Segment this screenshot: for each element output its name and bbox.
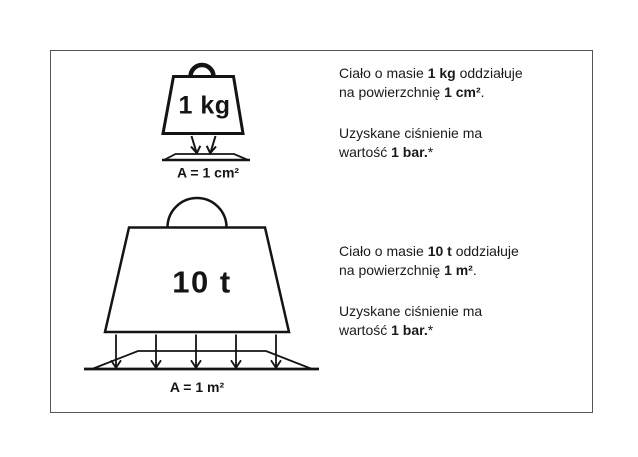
caption-text: oddziałuje: [452, 243, 519, 259]
caption-block-small-weight: Ciało o masie 1 kg oddziałuje na powierz…: [339, 64, 579, 162]
small-force-arrows: [191, 136, 216, 153]
large-weight-group: 10 t A = 1 m²: [84, 198, 319, 395]
caption-line: Ciało o masie 10 t oddziałuje: [339, 242, 579, 261]
large-weight-mass-label: 10 t: [172, 265, 231, 300]
caption-text: Uzyskane ciśnienie ma: [339, 125, 482, 141]
caption-text: .: [473, 262, 477, 278]
caption-text: na powierzchnię: [339, 262, 444, 278]
caption-line: Uzyskane ciśnienie ma: [339, 302, 579, 321]
caption-text: Ciało o masie: [339, 65, 428, 81]
large-weight-handle: [168, 198, 227, 228]
caption-paragraph: Uzyskane ciśnienie ma wartość 1 bar.*: [339, 302, 579, 340]
figure-frame: 1 kg A = 1 cm² 10 t: [50, 50, 593, 413]
caption-block-large-weight: Ciało o masie 10 t oddziałuje na powierz…: [339, 242, 579, 340]
caption-text: wartość: [339, 144, 391, 160]
small-weight-group: 1 kg A = 1 cm²: [162, 65, 250, 181]
caption-line: wartość 1 bar.*: [339, 143, 579, 162]
large-area-label: A = 1 m²: [170, 379, 225, 395]
footnote-asterisk: *: [428, 322, 433, 338]
caption-text: Uzyskane ciśnienie ma: [339, 303, 482, 319]
small-area-label: A = 1 cm²: [177, 165, 239, 181]
caption-bold-value: 1 bar.: [391, 322, 428, 338]
caption-text: oddziałuje: [456, 65, 523, 81]
caption-paragraph: Ciało o masie 1 kg oddziałuje na powierz…: [339, 64, 579, 102]
caption-bold-value: 1 cm²: [444, 84, 481, 100]
caption-bold-value: 1 m²: [444, 262, 473, 278]
caption-paragraph: Ciało o masie 10 t oddziałuje na powierz…: [339, 242, 579, 280]
caption-text: wartość: [339, 322, 391, 338]
caption-bold-value: 1 bar.: [391, 144, 428, 160]
large-contact-plate: [92, 351, 312, 369]
figure-page: 1 kg A = 1 cm² 10 t: [0, 0, 638, 457]
caption-text: Ciało o masie: [339, 243, 428, 259]
footnote-asterisk: *: [428, 144, 433, 160]
caption-line: wartość 1 bar.*: [339, 321, 579, 340]
caption-paragraph: Uzyskane ciśnienie ma wartość 1 bar.*: [339, 124, 579, 162]
small-weight-handle: [191, 65, 214, 77]
caption-text: .: [481, 84, 485, 100]
caption-line: na powierzchnię 1 m².: [339, 261, 579, 280]
caption-line: na powierzchnię 1 cm².: [339, 83, 579, 102]
caption-line: Ciało o masie 1 kg oddziałuje: [339, 64, 579, 83]
caption-bold-value: 1 kg: [428, 65, 456, 81]
caption-line: Uzyskane ciśnienie ma: [339, 124, 579, 143]
caption-bold-value: 10 t: [428, 243, 452, 259]
small-weight-mass-label: 1 kg: [178, 92, 230, 120]
caption-text: na powierzchnię: [339, 84, 444, 100]
